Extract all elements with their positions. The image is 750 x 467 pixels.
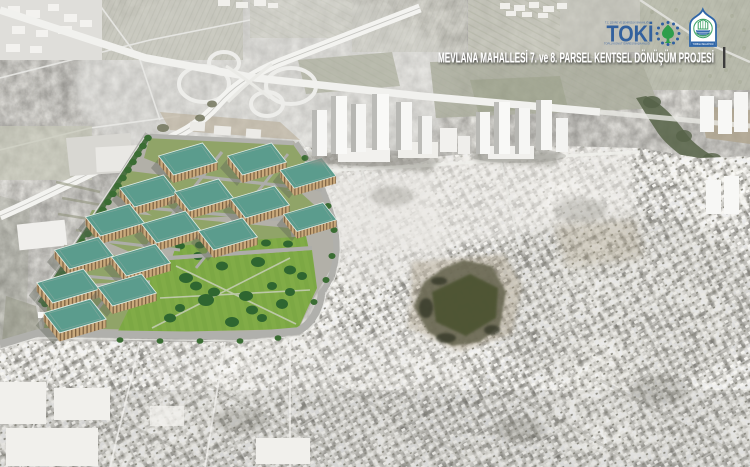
- svg-text:MEVLANA MAHALLESİ 7. ve 8. PAR: MEVLANA MAHALLESİ 7. ve 8. PARSEL KENTSE…: [438, 50, 714, 67]
- svg-text:TORBALI BELEDİYESİ: TORBALI BELEDİYESİ: [693, 43, 714, 46]
